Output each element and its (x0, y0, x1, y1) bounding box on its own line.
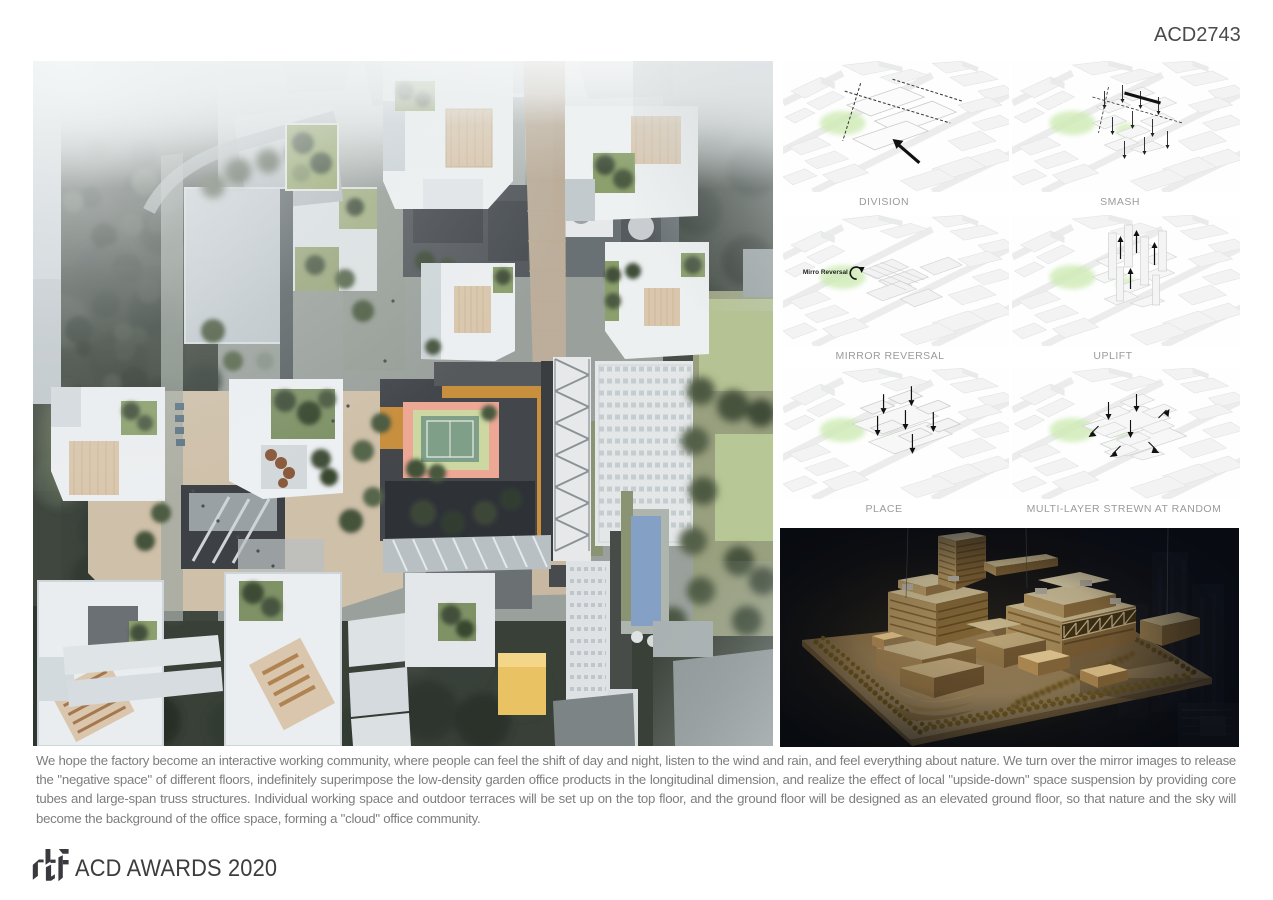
svg-text:Mirro Reversal: Mirro Reversal (803, 269, 848, 276)
